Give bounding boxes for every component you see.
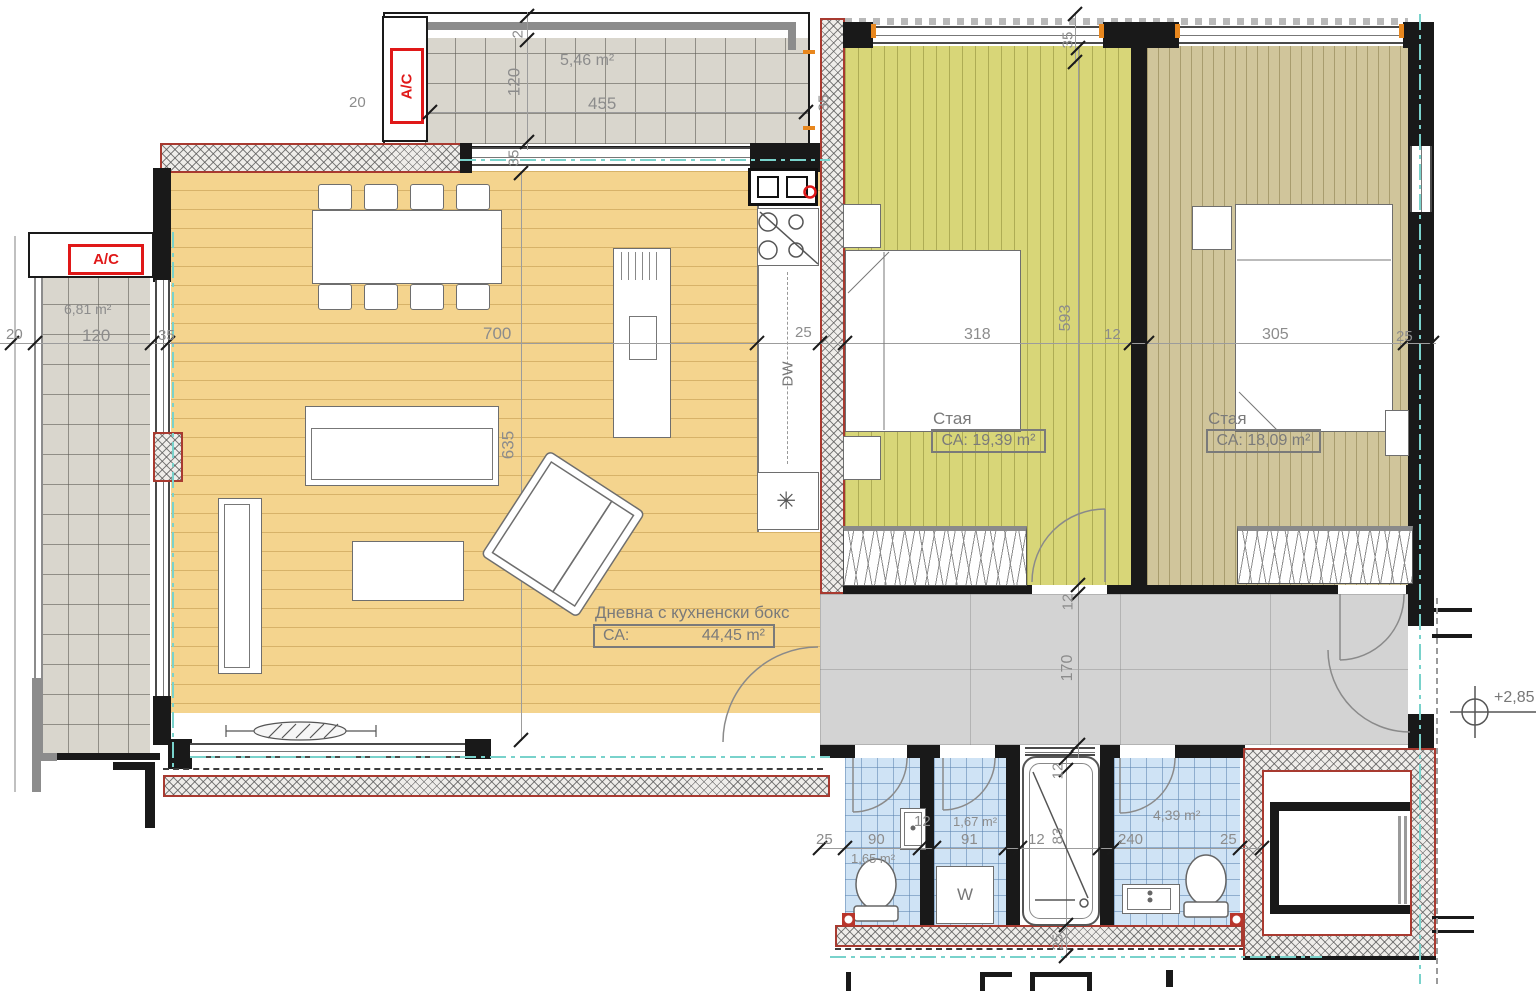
wall-living-left-top bbox=[153, 168, 171, 282]
elevator-cab bbox=[1270, 802, 1279, 914]
bed-2 bbox=[1235, 204, 1393, 432]
dim-main-35: 35 bbox=[158, 328, 175, 343]
dim-living-top-35: 35 bbox=[507, 150, 522, 167]
dim-balcony-455: 455 bbox=[588, 95, 616, 112]
laundry-area: 1,67 m² bbox=[953, 815, 997, 828]
dim-bed1-593: 593 bbox=[1058, 305, 1074, 332]
dim-tub-12: 12 bbox=[1051, 763, 1066, 780]
wall-bath-divider bbox=[1006, 758, 1020, 928]
room-corridor bbox=[820, 594, 1408, 745]
vanity-bowl bbox=[1127, 888, 1171, 910]
bedroom1-area-box: СА: 19,39 m² bbox=[931, 429, 1046, 453]
building-edge bbox=[41, 753, 57, 761]
axis-line bbox=[830, 956, 1322, 958]
island-cooktop bbox=[629, 316, 657, 360]
building-outline bbox=[14, 236, 16, 792]
outline-below bbox=[980, 972, 1012, 977]
boundary-dashed bbox=[835, 948, 1245, 950]
wall-bath-divider bbox=[1100, 758, 1114, 928]
wall-living-top bbox=[160, 143, 462, 173]
living-area-key: СА: bbox=[603, 627, 629, 645]
wall-stub bbox=[1432, 916, 1474, 919]
balcony-left-area: 6,81 m² bbox=[64, 302, 111, 316]
dim-balcony-20-left: 20 bbox=[349, 95, 366, 110]
elevation-value: +2,85 bbox=[1494, 690, 1534, 706]
wardrobe-1 bbox=[843, 526, 1027, 586]
dim-main-25-right: 25 bbox=[1396, 329, 1413, 344]
dining-chair bbox=[410, 184, 444, 210]
bedroom1-name: Стая bbox=[933, 410, 972, 427]
wall-cap bbox=[460, 143, 472, 173]
dim-wall-25: 25 bbox=[816, 832, 833, 847]
dining-chair bbox=[456, 184, 490, 210]
wardrobe-2 bbox=[1237, 526, 1413, 584]
island-vent bbox=[621, 252, 663, 280]
dim-line bbox=[1078, 48, 1079, 758]
sofa-seat bbox=[311, 428, 493, 480]
wall-stub bbox=[1432, 634, 1472, 638]
ac-unit-left: A/C bbox=[68, 244, 144, 275]
balcony-left-bottom-edge bbox=[42, 753, 160, 760]
living-area-box: СА: 44,45 m² bbox=[593, 624, 775, 648]
dim-living-635: 635 bbox=[500, 431, 517, 459]
ac-label: A/C bbox=[93, 251, 119, 268]
living-area-value: 44,45 m² bbox=[702, 627, 765, 645]
bedroom2-name: Стая bbox=[1208, 410, 1247, 427]
dim-corr-12: 12 bbox=[1061, 594, 1076, 611]
dim-main-318: 318 bbox=[964, 327, 991, 343]
ac-label: A/C bbox=[399, 73, 416, 99]
washer-label: W bbox=[957, 885, 973, 905]
bedroom2-area: СА: 18,09 m² bbox=[1217, 432, 1311, 450]
boundary-dashed bbox=[163, 768, 823, 770]
pier bbox=[843, 22, 873, 48]
wc-area: 1,65 m² bbox=[851, 852, 895, 865]
pier-red bbox=[153, 432, 183, 482]
wall-bath-top bbox=[1100, 745, 1120, 758]
coffee-table bbox=[352, 541, 464, 601]
fridge-icon: ✳ bbox=[776, 487, 796, 516]
dim-wall-35: 35 bbox=[817, 95, 832, 112]
living-name: Дневна с кухненски бокс bbox=[595, 604, 790, 621]
nightstand bbox=[1385, 410, 1409, 456]
wall-living-left-bottom bbox=[153, 696, 171, 745]
floor-plan: A/C A/C bbox=[0, 0, 1536, 991]
dim-balcony-120: 120 bbox=[506, 68, 523, 96]
axis-mark bbox=[803, 126, 815, 130]
dim-wc-90: 90 bbox=[868, 832, 885, 847]
dim-line bbox=[820, 848, 1262, 849]
dining-table bbox=[312, 210, 502, 284]
wall-bedrooms bbox=[1131, 46, 1147, 588]
dim-main-305: 305 bbox=[1262, 327, 1289, 343]
dim-line bbox=[1066, 758, 1067, 958]
dim-main-120: 120 bbox=[82, 327, 110, 344]
boundary-dashed-v bbox=[1436, 598, 1438, 984]
bench-seat bbox=[224, 504, 250, 668]
axis-mark bbox=[871, 24, 876, 38]
outline-below bbox=[1030, 972, 1092, 977]
wall-bedroom-bottom bbox=[843, 585, 1413, 594]
elevator-cab bbox=[1270, 905, 1410, 914]
outline-below bbox=[846, 972, 851, 991]
dim-line bbox=[430, 112, 808, 113]
wall-right bbox=[1408, 22, 1434, 596]
dishwasher-label: DW bbox=[781, 362, 796, 387]
step-edge bbox=[145, 762, 155, 828]
wall-bath-top bbox=[995, 745, 1020, 758]
dim-wc-12: 12 bbox=[914, 814, 931, 829]
pier bbox=[1103, 22, 1179, 48]
wall-stub bbox=[1432, 608, 1472, 612]
dining-chair bbox=[318, 184, 352, 210]
dim-bottom-25: 25 bbox=[1051, 934, 1066, 951]
bedroom2-area-box: СА: 18,09 m² bbox=[1206, 429, 1321, 453]
wall-bath-top bbox=[907, 745, 940, 758]
wall-bath-top bbox=[1175, 745, 1245, 758]
pass-window-tub bbox=[1025, 747, 1095, 756]
bathroom-area: 4,39 m² bbox=[1153, 808, 1200, 822]
dim-bath-240: 240 bbox=[1118, 832, 1143, 847]
door-opening-bedroom-1 bbox=[1032, 585, 1107, 594]
kitchen-sink-bowl bbox=[786, 176, 808, 198]
outline-below bbox=[1087, 972, 1092, 991]
dim-main-700: 700 bbox=[483, 325, 511, 342]
window-bedroom-2 bbox=[1179, 26, 1403, 44]
roof-edge bbox=[392, 22, 796, 30]
dim-line bbox=[527, 12, 528, 150]
dim-balcony-20: 20 bbox=[511, 22, 526, 39]
door-opening-bedroom-2 bbox=[1338, 585, 1406, 594]
balcony-top-outline bbox=[383, 12, 810, 148]
nightstand bbox=[1192, 206, 1232, 250]
dim-main-12: 12 bbox=[1104, 327, 1121, 342]
dim-bath-25: 25 bbox=[1220, 832, 1237, 847]
balcony-top-area: 5,46 m² bbox=[560, 53, 614, 69]
dim-tubwall-12: 12 bbox=[1028, 832, 1045, 847]
door-opening-entrance bbox=[1408, 626, 1434, 714]
wall-bottom-band bbox=[835, 925, 1243, 947]
outline-below bbox=[1030, 972, 1035, 991]
elevator-door bbox=[1404, 816, 1407, 904]
elevator-door bbox=[1398, 816, 1401, 904]
axis-line bbox=[1419, 14, 1421, 984]
dim-line bbox=[521, 173, 522, 741]
wall-bottom-band bbox=[163, 775, 830, 797]
axis-mark bbox=[1099, 24, 1104, 38]
wall-stub bbox=[1432, 930, 1474, 933]
bed-1 bbox=[845, 250, 1021, 432]
outline-below bbox=[1166, 970, 1173, 987]
stove bbox=[757, 208, 819, 266]
dining-chair bbox=[364, 184, 398, 210]
dining-chair bbox=[364, 284, 398, 310]
axis-mark bbox=[803, 50, 815, 54]
room-balcony-left bbox=[38, 278, 150, 755]
building-edge bbox=[32, 678, 41, 792]
dim-main-20: 20 bbox=[6, 327, 23, 342]
dim-corr-170: 170 bbox=[1060, 655, 1076, 682]
ac-unit-top: A/C bbox=[390, 48, 424, 124]
bedroom1-area: СА: 19,39 m² bbox=[942, 432, 1036, 450]
dim-tub-83: 83 bbox=[1051, 828, 1066, 845]
axis-line bbox=[172, 232, 174, 772]
axis-mark bbox=[1175, 24, 1180, 38]
nightstand bbox=[843, 204, 881, 248]
dim-laundry-91: 91 bbox=[961, 832, 978, 847]
dim-top-right-35: 35 bbox=[1061, 32, 1076, 49]
dining-chair bbox=[410, 284, 444, 310]
axis-line bbox=[190, 756, 830, 758]
elevator-cab bbox=[1270, 802, 1410, 811]
dining-chair bbox=[318, 284, 352, 310]
dining-chair bbox=[456, 284, 490, 310]
kitchen-sink-bowl bbox=[757, 176, 779, 198]
axis-mark bbox=[1399, 24, 1404, 38]
nightstand bbox=[843, 436, 881, 480]
radiator-icon bbox=[226, 722, 376, 740]
roof-edge-step bbox=[788, 22, 796, 50]
window-right bbox=[1410, 146, 1432, 212]
dim-main-25: 25 bbox=[795, 325, 812, 340]
dim-line bbox=[0, 343, 1436, 344]
